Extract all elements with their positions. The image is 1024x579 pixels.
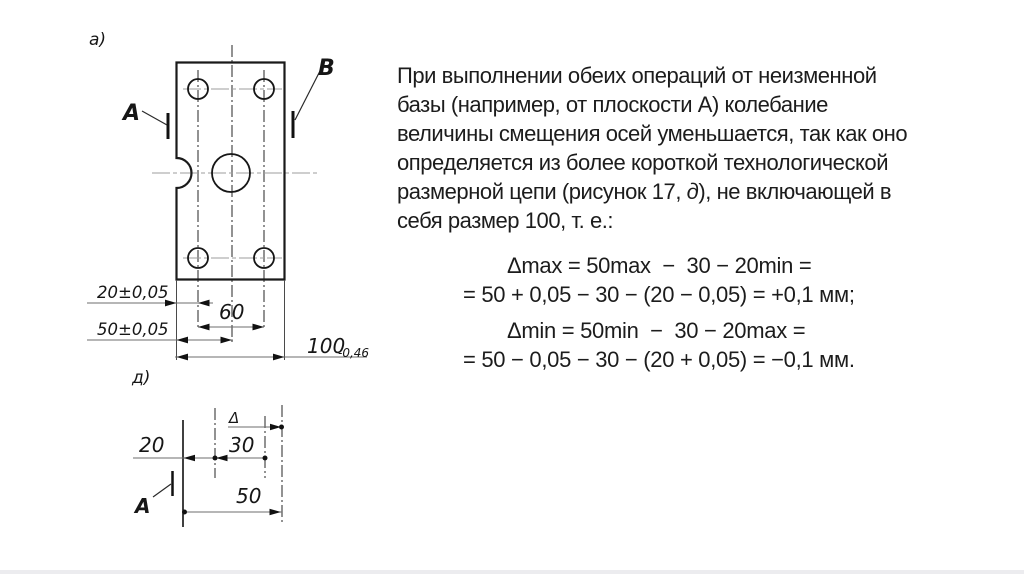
svg-text:60: 60 [219,300,244,324]
datum-a2-label: A [133,494,150,518]
dimension-100: 100 -0,46 [175,334,369,360]
figure-a-label: а) [89,30,106,50]
slide-page: а) A B [0,0,1024,574]
svg-text:30: 30 [229,433,254,457]
dimension-chain-50: 50 [182,484,282,515]
datum-a2-leader [153,484,171,497]
slide-bottom-edge [0,570,1024,574]
svg-text:50±0,05: 50±0,05 [97,320,169,339]
svg-text:Δ: Δ [228,409,239,427]
svg-text:20: 20 [139,433,164,457]
formula-delta-max-result: = 50 + 0,05 − 30 − (20 − 0,05) = +0,1 мм… [463,281,855,309]
dimension-50: 50±0,05 [87,320,233,343]
body-line-3: величины смещения осей уменьшается, так … [397,119,957,148]
formula-delta-max: Δmax = 50max − 30 − 20min = [507,252,811,280]
body-line-5: размерной цепи (рисунок 17, д), не включ… [397,177,957,206]
body-line-2: базы (например, от плоскости А) колебани… [397,90,957,119]
dimension-delta: Δ [228,409,284,430]
formula-delta-min-result: = 50 − 0,05 − 30 − (20 + 0,05) = −0,1 мм… [463,346,855,374]
svg-text:-0,46: -0,46 [338,346,369,360]
body-line-1: При выполнении обеих операций от неизмен… [397,61,957,90]
technical-drawing: а) A B [0,0,395,574]
dimension-20: 20±0,05 [87,283,213,306]
body-line-6: себя размер 100, т. е.: [397,206,957,235]
svg-text:20±0,05: 20±0,05 [97,283,169,302]
body-line-4: определяется из более короткой технологи… [397,148,957,177]
datum-a-leader [142,111,167,125]
figure-d: д) Δ 20 30 [131,368,284,527]
formula-delta-min: Δmin = 50min − 30 − 20max = [507,317,805,345]
plate-outline [177,63,285,280]
figure-a: а) A B [87,30,369,360]
figure-d-label: д) [131,368,150,388]
datum-b-label: B [318,56,335,81]
dimension-chain-20-30: 20 30 [133,433,268,461]
body-text: При выполнении обеих операций от неизмен… [397,61,957,235]
svg-text:50: 50 [236,484,261,508]
datum-a-label: A [121,101,140,126]
